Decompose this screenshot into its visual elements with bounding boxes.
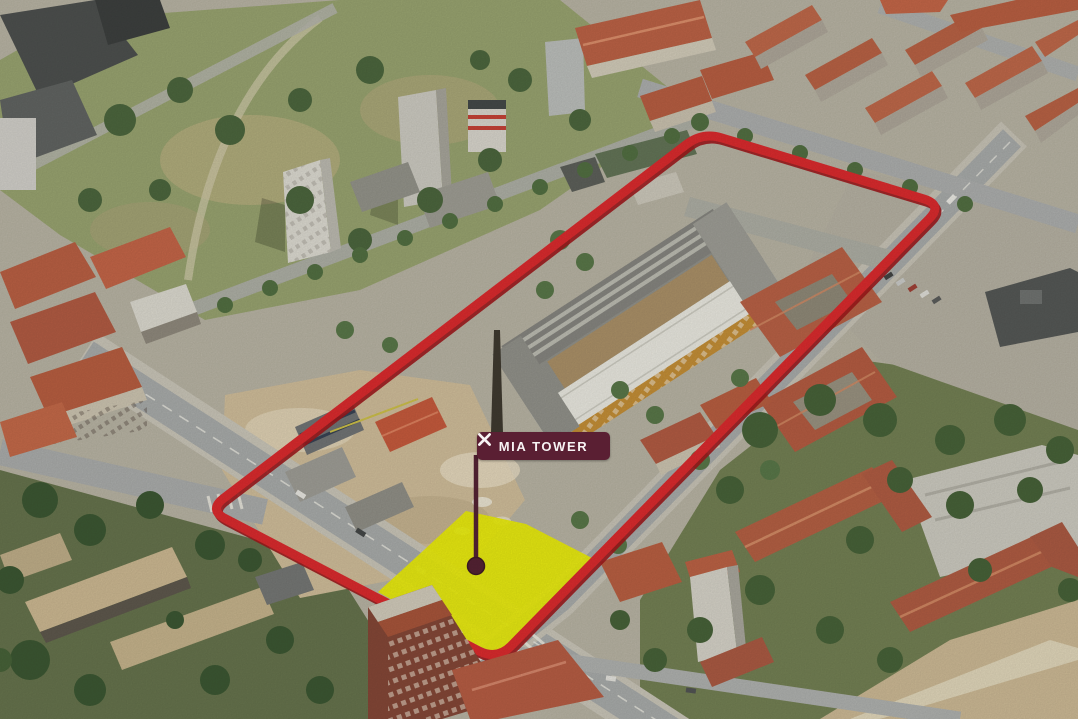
aerial-photo: [0, 0, 1078, 719]
site-label-text: MIA TOWER: [499, 439, 589, 454]
site-label: MIA TOWER: [477, 432, 610, 460]
x-brand-mark-icon: [477, 432, 492, 447]
aerial-view: MIA TOWER: [0, 0, 1078, 719]
